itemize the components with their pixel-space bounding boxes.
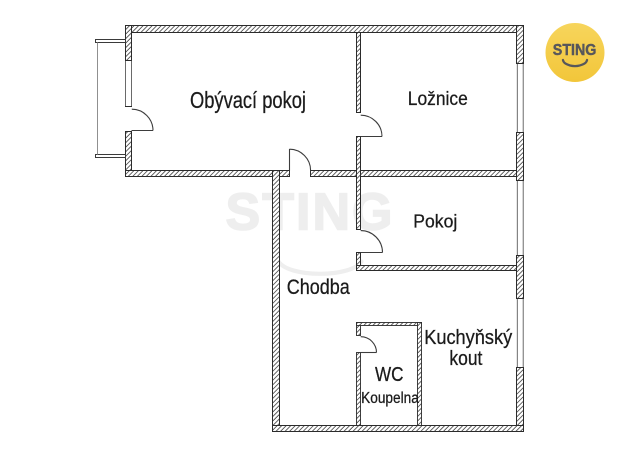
svg-text:Obývací pokoj: Obývací pokoj <box>190 87 306 113</box>
svg-text:Ložnice: Ložnice <box>408 89 468 110</box>
svg-text:STING: STING <box>553 42 597 59</box>
svg-text:Chodba: Chodba <box>287 275 350 299</box>
svg-text:kout: kout <box>449 347 482 370</box>
svg-text:Kuchyňský: Kuchyňský <box>424 326 513 349</box>
svg-text:Pokoj: Pokoj <box>413 211 457 232</box>
svg-text:Koupelna: Koupelna <box>361 390 419 407</box>
svg-text:WC: WC <box>375 364 404 386</box>
